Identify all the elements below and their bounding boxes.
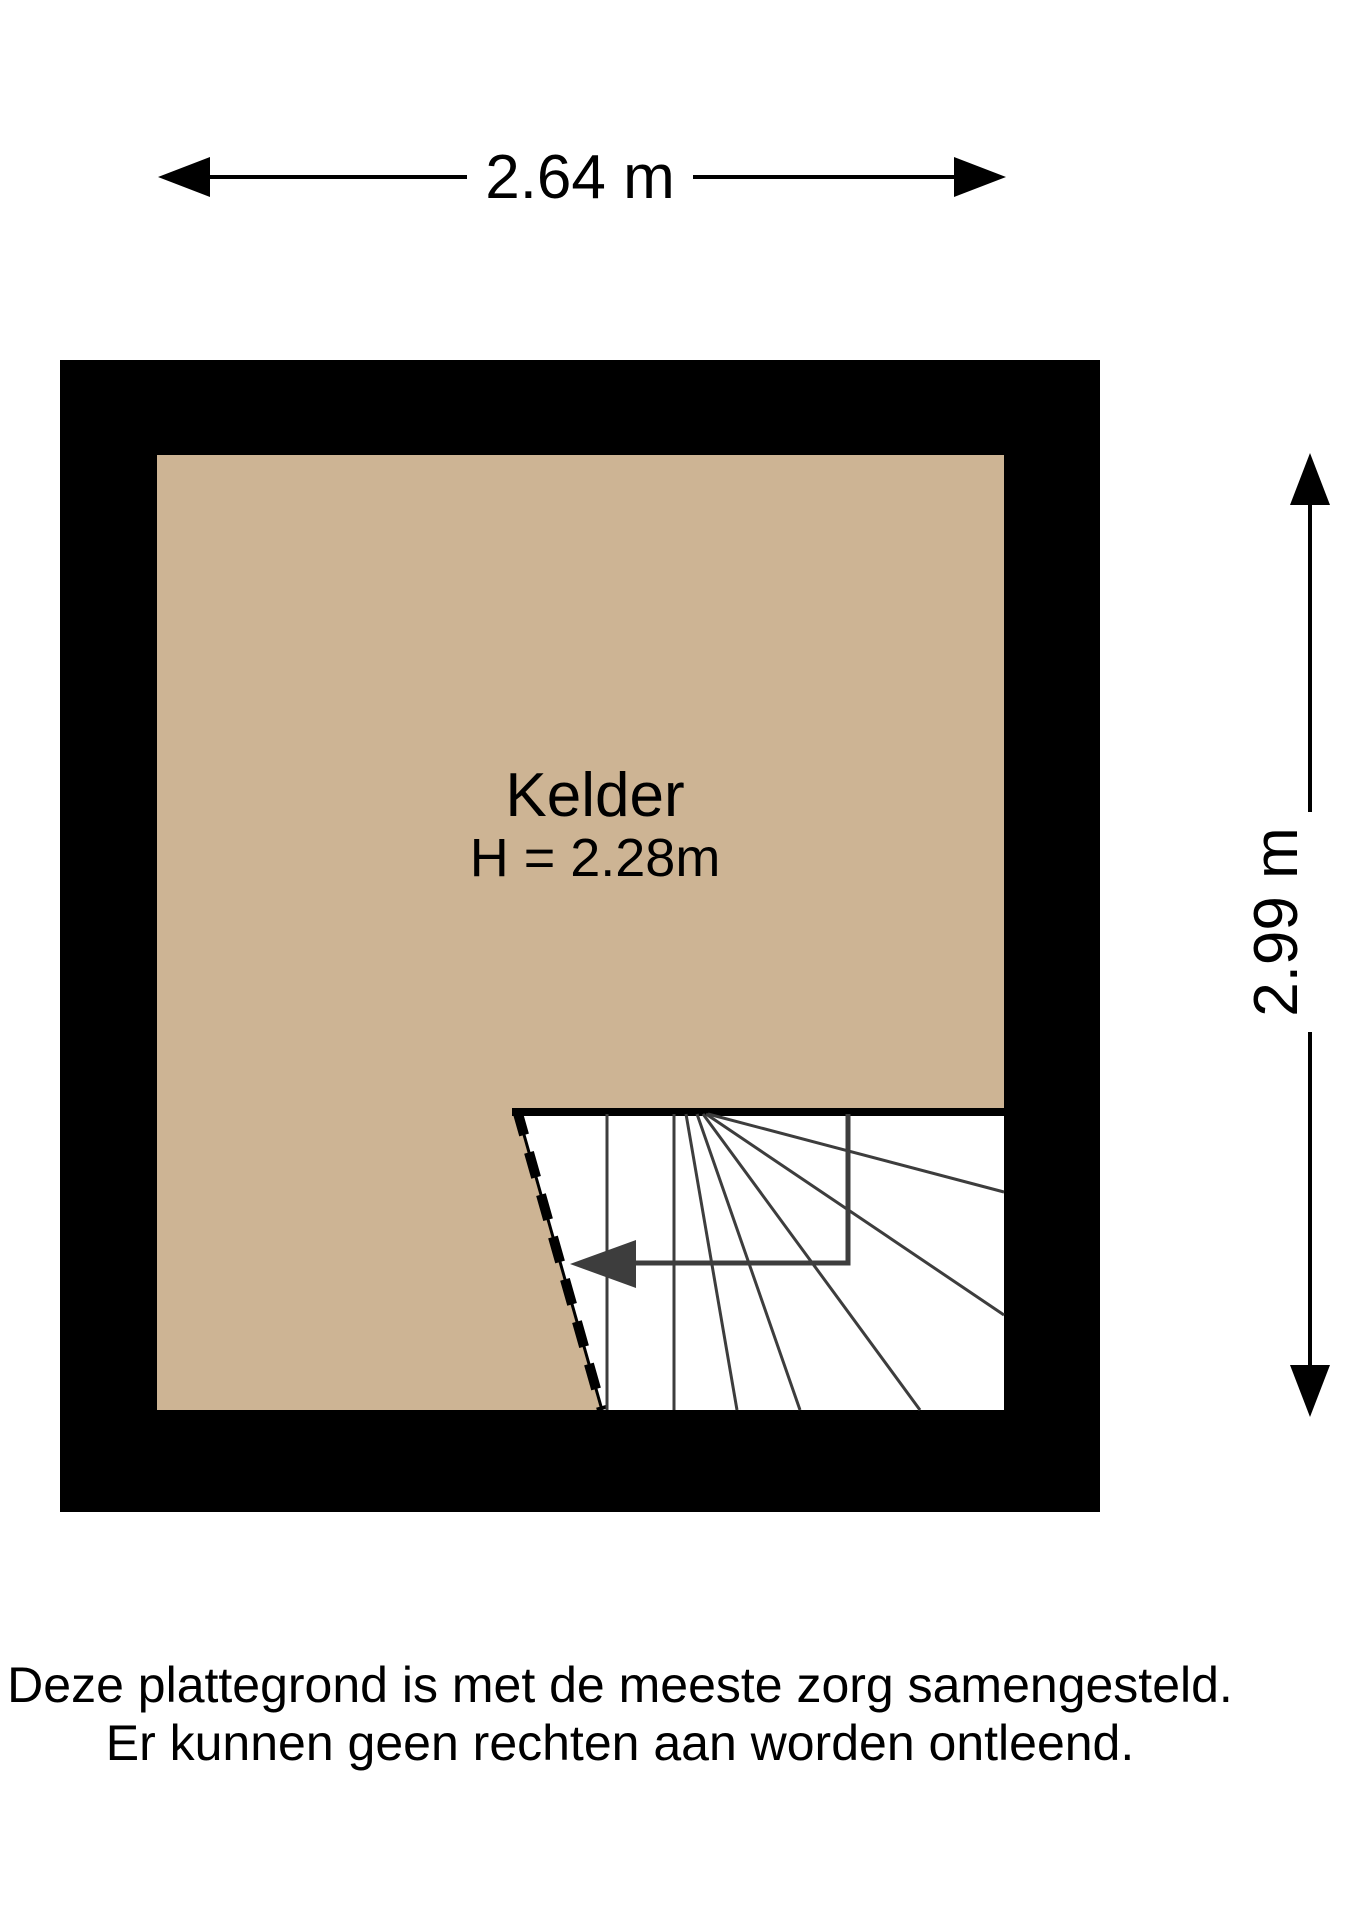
disclaimer-text: Deze plattegrond is met de meeste zorg s…: [0, 1656, 1240, 1772]
arrow-right-icon: [954, 157, 1006, 197]
room-name-label: Kelder: [395, 764, 795, 828]
floorplan-page: 2.64 m 2.99 m Kelder H = 2.28m Deze plat…: [0, 0, 1358, 1920]
arrow-down-icon: [1290, 1365, 1330, 1417]
room-ceiling-height-label: H = 2.28m: [395, 830, 795, 886]
floorplan-drawing: [0, 0, 1358, 1920]
width-dimension-label: 2.64 m: [430, 146, 730, 210]
disclaimer-line-2: Er kunnen geen rechten aan worden ontlee…: [0, 1714, 1240, 1772]
arrow-left-icon: [158, 157, 210, 197]
height-dimension-label: 2.99 m: [1245, 772, 1309, 1072]
arrow-up-icon: [1290, 453, 1330, 505]
disclaimer-line-1: Deze plattegrond is met de meeste zorg s…: [0, 1656, 1240, 1714]
staircase: [512, 1110, 1004, 1410]
